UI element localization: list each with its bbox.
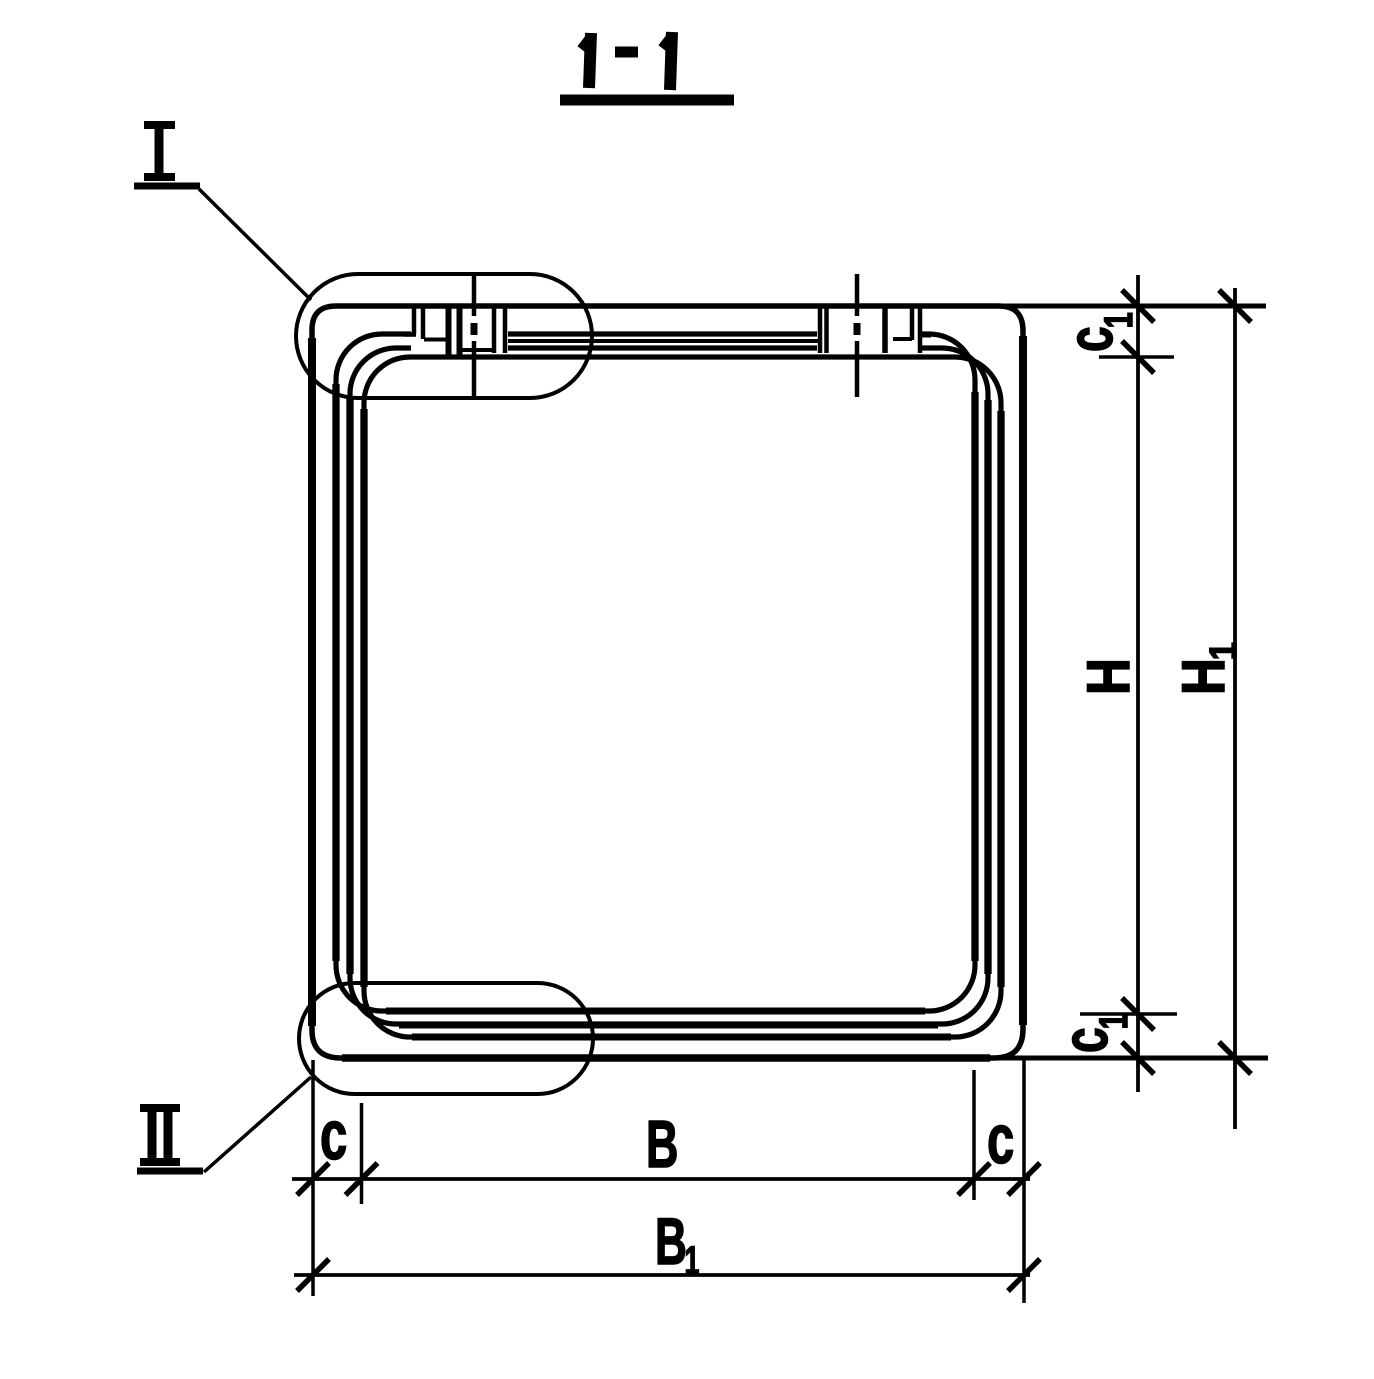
- svg-text:c: c: [1050, 1027, 1121, 1053]
- svg-text:B: B: [655, 1204, 687, 1278]
- svg-text:1: 1: [1203, 642, 1245, 660]
- svg-text:1: 1: [1091, 1013, 1136, 1029]
- svg-text:1: 1: [1096, 312, 1141, 328]
- svg-text:1: 1: [684, 1239, 699, 1284]
- svg-text:H: H: [1170, 658, 1237, 695]
- svg-text:B: B: [646, 1107, 678, 1182]
- svg-text:H: H: [1075, 658, 1142, 695]
- svg-text:c: c: [320, 1095, 347, 1174]
- svg-text:c: c: [987, 1099, 1014, 1178]
- svg-text:c: c: [1055, 326, 1126, 352]
